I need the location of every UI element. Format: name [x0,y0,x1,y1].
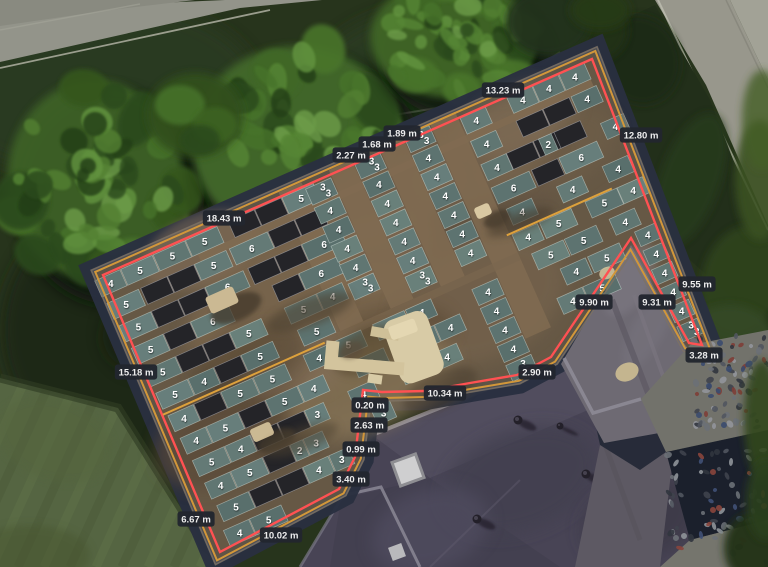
svg-text:4: 4 [451,211,457,222]
svg-text:4: 4 [459,230,465,241]
svg-text:5: 5 [170,252,176,263]
svg-text:6: 6 [511,183,517,194]
svg-text:4: 4 [511,345,517,356]
svg-text:3: 3 [374,163,380,174]
svg-text:5: 5 [202,237,208,248]
svg-text:4: 4 [448,323,454,334]
svg-text:4: 4 [525,233,531,244]
svg-text:4: 4 [679,307,685,318]
svg-text:3: 3 [326,189,332,200]
svg-text:0.99 m: 0.99 m [346,444,376,455]
svg-text:5: 5 [602,199,608,210]
svg-text:5: 5 [247,468,253,479]
svg-text:4: 4 [316,354,322,365]
svg-text:4: 4 [376,180,382,191]
svg-text:0.20 m: 0.20 m [355,400,385,411]
svg-text:4: 4 [502,326,508,337]
svg-text:5: 5 [137,266,143,277]
svg-text:2.63 m: 2.63 m [354,420,384,431]
svg-text:4: 4 [654,250,660,261]
svg-text:5: 5 [233,502,239,513]
svg-text:4: 4 [316,465,322,476]
svg-text:4: 4 [570,185,576,196]
svg-text:4: 4 [237,529,243,540]
svg-text:1.89 m: 1.89 m [387,128,417,139]
svg-text:4: 4 [410,256,416,267]
svg-text:2.90 m: 2.90 m [522,367,552,378]
svg-text:1.68 m: 1.68 m [362,139,392,150]
svg-text:4: 4 [218,481,224,492]
svg-text:4: 4 [623,217,629,228]
svg-text:3: 3 [339,455,345,466]
svg-text:2: 2 [546,140,552,151]
svg-text:5: 5 [282,397,288,408]
svg-text:5: 5 [237,389,243,400]
svg-text:4: 4 [401,237,407,248]
svg-text:4: 4 [181,414,187,425]
svg-text:4: 4 [570,296,576,307]
svg-text:12.80 m: 12.80 m [624,130,659,141]
svg-text:5: 5 [556,219,562,230]
svg-text:3.40 m: 3.40 m [336,474,366,485]
svg-text:4: 4 [426,154,432,165]
svg-text:4: 4 [385,199,391,210]
svg-text:4: 4 [574,267,580,278]
svg-text:6: 6 [321,240,327,251]
svg-text:9.90 m: 9.90 m [579,297,609,308]
svg-text:4: 4 [630,186,636,197]
svg-text:4: 4 [443,192,449,203]
svg-text:4: 4 [311,384,317,395]
svg-text:5: 5 [604,253,610,264]
svg-text:4: 4 [344,244,350,255]
svg-text:4: 4 [393,218,399,229]
svg-text:5: 5 [160,367,166,378]
svg-text:4: 4 [645,231,651,242]
svg-text:4: 4 [238,444,244,455]
svg-text:4: 4 [584,95,590,106]
svg-text:3.28 m: 3.28 m [689,350,719,361]
svg-text:4: 4 [193,436,199,447]
svg-text:5: 5 [148,345,154,356]
svg-text:4: 4 [434,173,440,184]
svg-text:6: 6 [249,244,255,255]
svg-text:2.27 m: 2.27 m [336,150,366,161]
svg-text:4: 4 [546,84,552,95]
svg-text:5: 5 [223,423,229,434]
svg-text:9.55 m: 9.55 m [682,279,712,290]
svg-text:4: 4 [336,225,342,236]
svg-text:18.43 m: 18.43 m [207,213,242,224]
svg-text:4: 4 [353,263,359,274]
svg-text:10.02 m: 10.02 m [264,530,299,541]
svg-text:15.18 m: 15.18 m [119,367,154,378]
svg-text:5: 5 [246,329,252,340]
svg-text:4: 4 [444,352,450,363]
svg-text:5: 5 [257,352,263,363]
svg-text:3: 3 [425,277,431,288]
svg-text:5: 5 [314,327,320,338]
svg-text:4: 4 [201,377,207,388]
svg-text:13.23 m: 13.23 m [486,85,521,96]
svg-text:5: 5 [209,457,215,468]
svg-text:4: 4 [327,206,333,217]
svg-text:4: 4 [474,116,480,127]
svg-text:4: 4 [484,140,490,151]
svg-text:6.67 m: 6.67 m [181,514,211,525]
svg-text:5: 5 [211,261,217,272]
svg-text:10.34 m: 10.34 m [428,388,463,399]
svg-text:5: 5 [270,374,276,385]
svg-text:4: 4 [494,163,500,174]
svg-text:5: 5 [172,390,178,401]
svg-text:3: 3 [315,410,321,421]
svg-text:4: 4 [485,288,491,299]
svg-text:5: 5 [581,236,587,247]
svg-text:4: 4 [662,269,668,280]
svg-text:5: 5 [548,251,554,262]
svg-text:5: 5 [123,300,129,311]
svg-text:4: 4 [615,165,621,176]
svg-text:5: 5 [136,322,142,333]
svg-text:3: 3 [368,284,374,295]
svg-text:6: 6 [319,269,325,280]
svg-text:3: 3 [424,136,430,147]
svg-text:6: 6 [579,153,585,164]
svg-text:9.31 m: 9.31 m [642,297,672,308]
svg-text:4: 4 [494,307,500,318]
svg-text:4: 4 [468,249,474,260]
svg-text:4: 4 [572,72,578,83]
svg-text:5: 5 [298,194,304,205]
